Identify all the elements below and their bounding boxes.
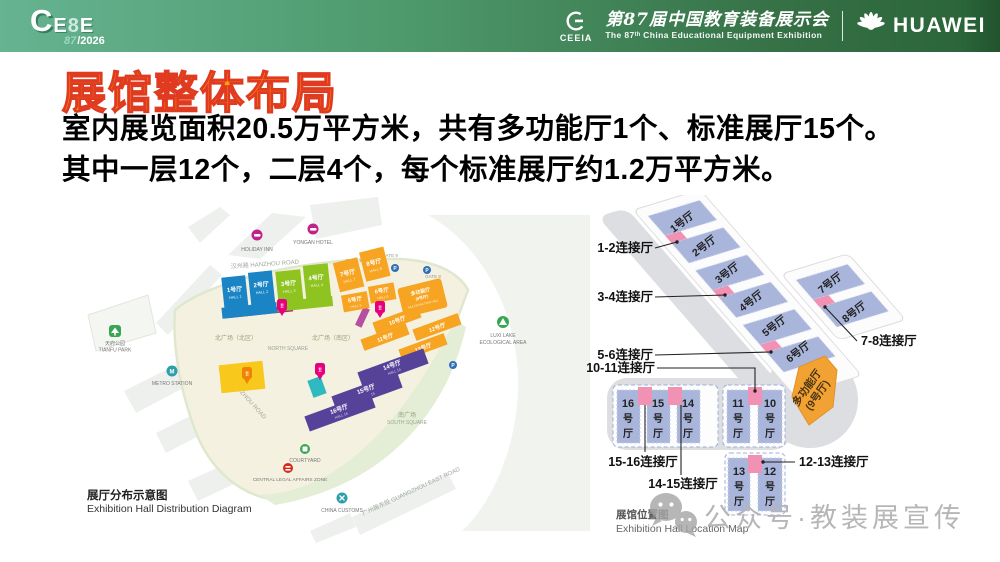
label-connector-12-13: 12-13连接厅 — [799, 454, 869, 469]
hall-11: 11号厅 — [732, 398, 744, 440]
courtyard-label: COURTYARD — [289, 458, 321, 464]
luxi-lake-icon — [497, 316, 509, 328]
legal-affairs-label: CENTRAL LEGAL AFFAIRS ZONE — [253, 477, 328, 483]
svg-text:11: 11 — [732, 398, 744, 410]
label-connector-15-16: 15-16连接厅 — [608, 454, 678, 469]
svg-text:厅: 厅 — [765, 428, 775, 440]
legal-affairs-icon — [283, 463, 293, 473]
slide: CE8E 87/2026 CEEIA 第87届中国教育装备展示会 The 87ᵗ… — [0, 0, 1000, 562]
body-text: 室内展览面积20.5万平方米，共有多功能厅1个、标准展厅15个。 其中一层12个… — [62, 109, 894, 191]
event-title-cn: 第87届中国教育装备展示会 — [605, 11, 829, 31]
holiday-inn-icon — [252, 230, 263, 241]
body-line-1: 室内展览面积20.5万平方米，共有多功能厅1个、标准展厅15个。 — [62, 109, 894, 150]
huawei-wordmark: HUAWEI — [893, 14, 986, 38]
courtyard-icon — [300, 444, 310, 454]
huawei-logo: HUAWEI — [856, 11, 986, 41]
event-title-en: The 87ᵗʰ China Educational Equipment Exh… — [605, 31, 829, 41]
svg-text:16: 16 — [622, 398, 634, 410]
label-connector-3-4: 3-4连接厅 — [597, 289, 653, 304]
svg-text:10: 10 — [764, 398, 776, 410]
china-customs-icon — [337, 493, 348, 504]
label-connector-10-11: 10-11连接厅 — [586, 360, 655, 375]
header-bar: CE8E 87/2026 CEEIA 第87届中国教育装备展示会 The 87ᵗ… — [0, 0, 1000, 52]
ceeia-circle-icon — [565, 10, 587, 32]
tianfu-park-icon — [109, 325, 121, 337]
yongan-hotel-label: YONGAN HOTEL — [293, 240, 333, 246]
luxi-lake-label: LUXI LAKE — [490, 333, 516, 339]
body-line-2: 其中一层12个，二层4个，每个标准展厅约1.2万平方米。 — [62, 150, 894, 191]
svg-text:ECOLOGICAL AREA: ECOLOGICAL AREA — [479, 340, 527, 346]
watermark: 公众号·教装展宣传 — [646, 490, 965, 540]
holiday-inn-label: HOLIDAY INN — [241, 247, 273, 253]
svg-text:14: 14 — [682, 398, 695, 410]
label-connector-1-2: 1-2连接厅 — [597, 240, 653, 255]
north-square-south: 北广场（南区） — [312, 334, 354, 342]
svg-text:号: 号 — [765, 413, 775, 425]
svg-text:厅: 厅 — [733, 428, 743, 440]
metro-station-icon: M — [167, 366, 178, 377]
huawei-flower-icon — [856, 11, 886, 41]
north-square-north: 北广场（北区） — [215, 334, 257, 342]
svg-text:M: M — [170, 370, 175, 376]
event-title: 第87届中国教育装备展示会 The 87ᵗʰ China Educational… — [605, 11, 829, 40]
svg-text:12: 12 — [764, 466, 776, 478]
header-divider — [842, 11, 843, 41]
north-square-en: NORTH SQUARE — [268, 346, 309, 352]
svg-text:厅: 厅 — [653, 428, 663, 440]
south-square: 南广场 — [398, 411, 416, 419]
logo-letter: E — [80, 16, 93, 36]
svg-text:‼: ‼ — [378, 306, 382, 312]
svg-text:‼: ‼ — [318, 368, 322, 374]
svg-text:15: 15 — [652, 398, 664, 410]
svg-text:号: 号 — [733, 413, 743, 425]
logo-letter: C — [30, 5, 52, 36]
logo-edition-year: 87/2026 — [64, 36, 105, 47]
watermark-text: 公众号·教装展宣传 — [704, 496, 965, 535]
svg-text:‼: ‼ — [245, 372, 249, 378]
left-map-caption: 展厅分布示意图 Exhibition Hall Distribution Dia… — [87, 489, 252, 517]
logo-letter: 8 — [68, 16, 79, 36]
logo-letter: E — [53, 16, 66, 36]
cebe-logo: CE8E 87/2026 — [30, 5, 105, 47]
left-caption-cn: 展厅分布示意图 — [87, 489, 252, 503]
svg-text:号: 号 — [683, 413, 693, 425]
svg-text:13: 13 — [733, 466, 745, 478]
tianfu-park-en: TIANFU PARK — [99, 348, 132, 354]
south-square-en: SOUTH SQUARE — [387, 420, 428, 426]
food-court-block — [219, 361, 266, 393]
label-connector-7-8: 7-8连接厅 — [861, 333, 917, 348]
svg-text:号: 号 — [653, 413, 663, 425]
metro-station-label: METRO STATION — [152, 381, 193, 387]
ceeia-logo: CEEIA — [560, 10, 593, 43]
ceeia-label: CEEIA — [560, 34, 593, 43]
hall-16: 16号厅 — [622, 398, 634, 440]
hall-15: 15号厅 — [652, 398, 664, 440]
wechat-icon — [646, 490, 700, 540]
svg-text:‼: ‼ — [280, 304, 284, 310]
hall-10: 10号厅 — [764, 398, 776, 440]
header-right: CEEIA 第87届中国教育装备展示会 The 87ᵗʰ China Educa… — [560, 0, 986, 52]
svg-text:厅: 厅 — [683, 428, 693, 440]
yongan-hotel-icon — [308, 224, 319, 235]
label-connector-5-6: 5-6连接厅 — [597, 347, 653, 362]
svg-text:厅: 厅 — [623, 428, 633, 440]
china-customs-label: CHINA CUSTOMS — [321, 508, 363, 514]
left-caption-en: Exhibition Hall Distribution Diagram — [87, 503, 252, 516]
tianfu-park-cn: 天府公园 — [105, 340, 125, 347]
svg-text:GATE 8: GATE 8 — [425, 274, 441, 279]
svg-text:号: 号 — [623, 413, 633, 425]
label-connector-14-15: 14-15连接厅 — [648, 476, 718, 491]
